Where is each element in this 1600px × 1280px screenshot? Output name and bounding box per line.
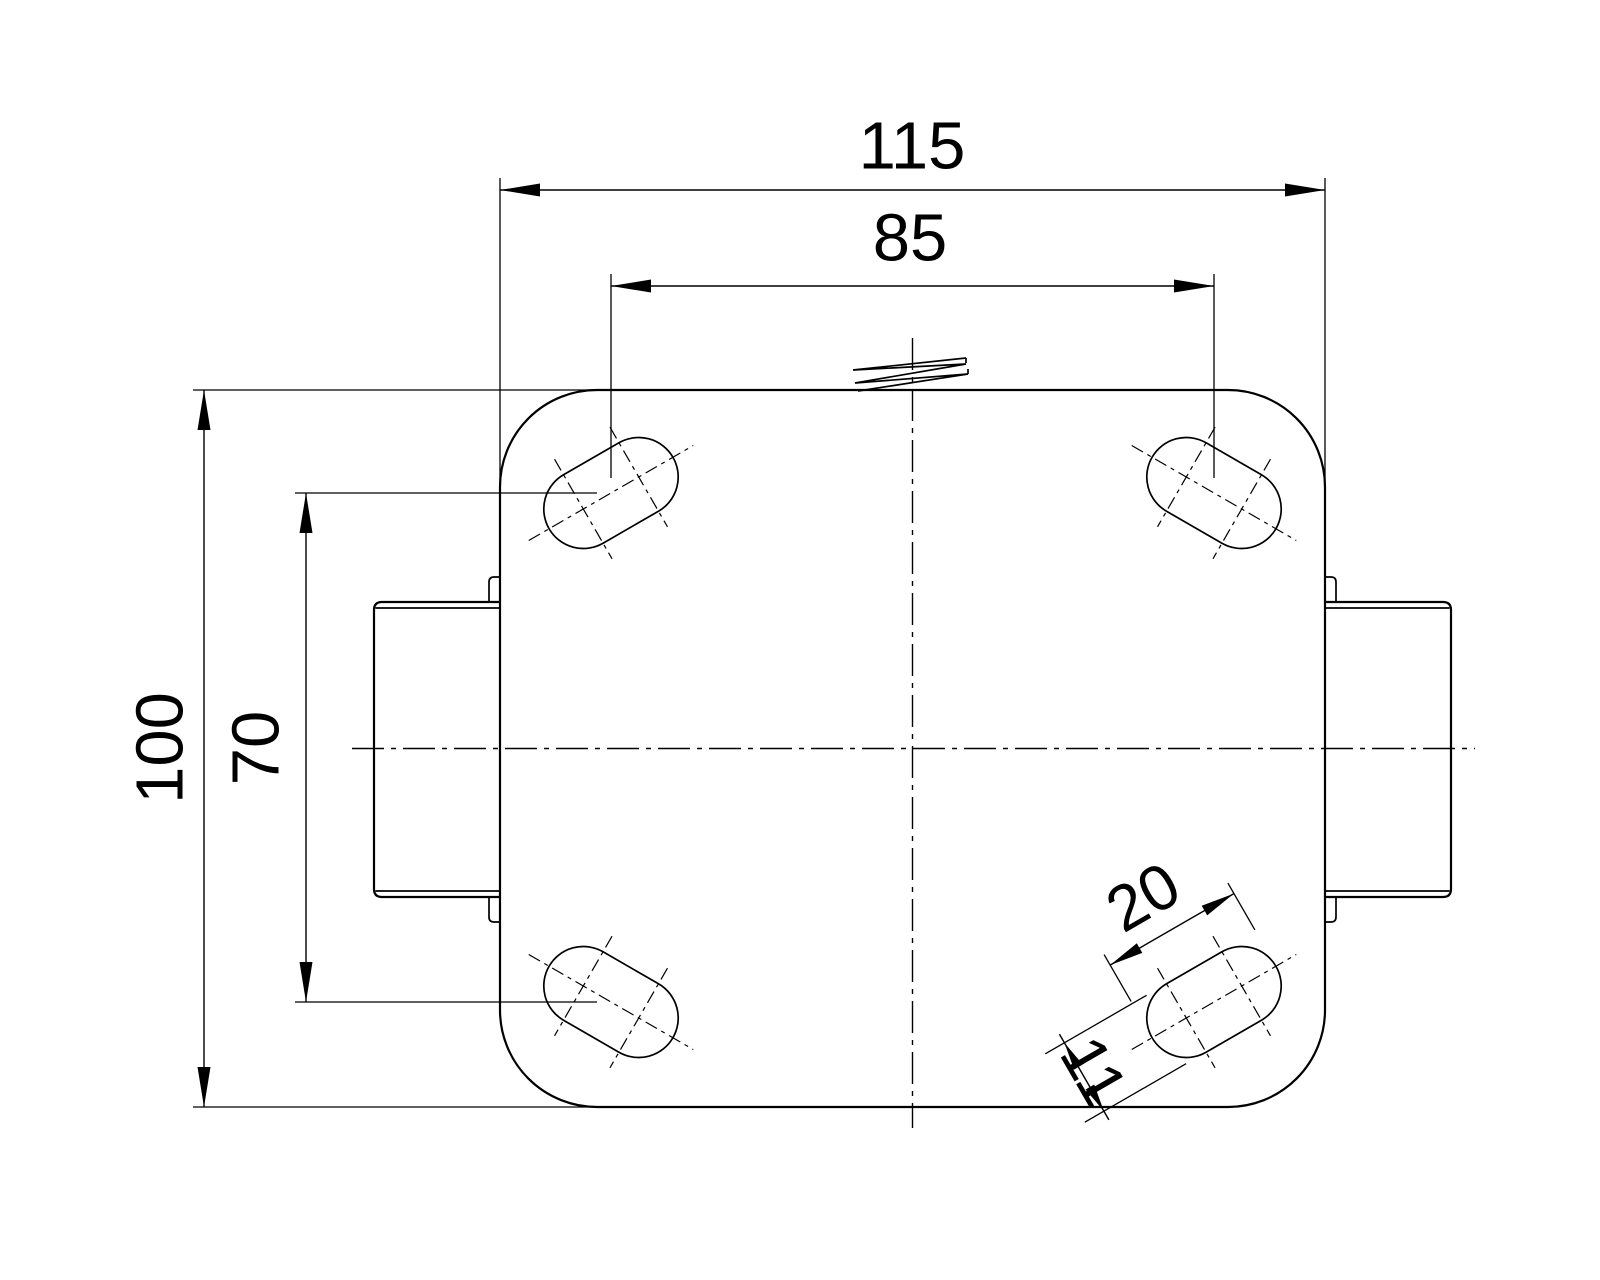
dim-20-ext-right bbox=[1228, 883, 1255, 930]
technical-drawing: 115 85 100 70 20 bbox=[0, 0, 1600, 1280]
dim-100-arrow-bottom bbox=[198, 1067, 211, 1107]
wheel-left-hub-tab-bottom bbox=[489, 898, 500, 922]
dim-20-value: 20 bbox=[1094, 848, 1192, 946]
slot-bottom-right-axis bbox=[1132, 955, 1297, 1050]
dim-115-arrow-left bbox=[500, 184, 540, 197]
dim-85-value: 85 bbox=[873, 201, 948, 276]
dim-20-arrow-right bbox=[1202, 894, 1234, 916]
thread-stud-symbol-edge bbox=[966, 358, 968, 374]
dim-100-value: 100 bbox=[123, 692, 198, 804]
wheel-right-hub-tab-bottom bbox=[1325, 898, 1336, 922]
dimension-11: 11 bbox=[1045, 995, 1186, 1122]
wheel-left-outline bbox=[374, 602, 500, 897]
drawing-canvas: 115 85 100 70 20 bbox=[0, 0, 1600, 1280]
slot-bottom-right-outline bbox=[1132, 932, 1295, 1072]
wheel-right-stub bbox=[1325, 577, 1451, 922]
wheel-left-hub-tab-top bbox=[489, 577, 500, 601]
wheel-left-stub bbox=[374, 577, 500, 922]
thread-stud-symbol bbox=[853, 358, 968, 391]
dim-85-arrow-left bbox=[611, 280, 651, 293]
dim-115-arrow-right bbox=[1285, 184, 1325, 197]
dim-85-arrow-right bbox=[1174, 280, 1214, 293]
dim-11-value: 11 bbox=[1046, 1024, 1142, 1118]
dim-70-value: 70 bbox=[219, 711, 294, 786]
dim-115-value: 115 bbox=[859, 109, 966, 184]
wheel-right-outline bbox=[1325, 602, 1451, 897]
dim-100-arrow-top bbox=[198, 390, 211, 430]
dim-20-arrow-left bbox=[1110, 943, 1142, 965]
dimension-70: 70 bbox=[219, 493, 598, 1002]
dim-70-arrow-top bbox=[300, 493, 313, 533]
wheel-right-hub-tab-top bbox=[1325, 577, 1336, 601]
dim-70-arrow-bottom bbox=[300, 962, 313, 1002]
